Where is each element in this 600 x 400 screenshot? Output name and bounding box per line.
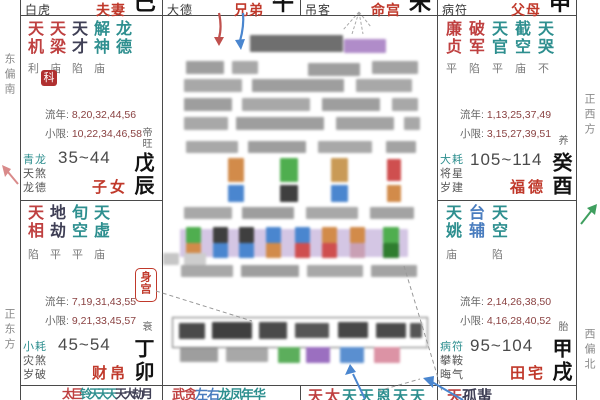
censored-block bbox=[213, 227, 228, 243]
star: 天空 bbox=[489, 204, 505, 240]
brightness: 利 bbox=[28, 60, 39, 76]
censored-block bbox=[331, 158, 348, 182]
brightness: 陷 bbox=[469, 60, 480, 76]
censored-block bbox=[181, 265, 233, 277]
star: 天才 bbox=[69, 20, 85, 56]
censored-block bbox=[295, 243, 310, 258]
censored-block bbox=[184, 79, 242, 92]
censored-block bbox=[184, 117, 228, 130]
censored-block bbox=[331, 185, 348, 202]
censored-block bbox=[213, 243, 228, 258]
liunian-years: 2,14,26,38,50 bbox=[487, 296, 551, 308]
star: 廉贞 bbox=[443, 20, 459, 56]
censored-block bbox=[306, 347, 330, 363]
xiaoxian-years: 10,22,34,46,58 bbox=[72, 128, 142, 140]
censored-block bbox=[242, 98, 310, 111]
censored-block bbox=[163, 253, 179, 265]
censored-block bbox=[184, 207, 232, 219]
ziwei-chart: 东偏南 正东方 正西方 西偏北 白虎 夫妻 巳 大德 兄弟 午 吊客 命宫 未 … bbox=[0, 0, 600, 400]
god-label: 吊客 bbox=[305, 1, 331, 18]
brightness: 陷 bbox=[492, 246, 503, 262]
liunian-years: 8,20,32,44,56 bbox=[72, 109, 136, 121]
liunian-years: 1,13,25,37,49 bbox=[487, 109, 551, 121]
star-char: 天 bbox=[342, 389, 357, 400]
xiaoxian-label: 小限: bbox=[45, 315, 69, 327]
brightness: 平 bbox=[72, 246, 83, 262]
red-arrow-icon bbox=[214, 13, 224, 46]
liunian-label: 流年: bbox=[460, 296, 484, 308]
censored-block bbox=[280, 158, 298, 182]
censored-block bbox=[186, 243, 201, 258]
censored-block bbox=[252, 79, 344, 92]
branch-char: 巳 bbox=[134, 0, 156, 14]
star-char: 月 bbox=[141, 388, 153, 400]
star: 截空 bbox=[512, 20, 528, 56]
star: 天虚 bbox=[91, 204, 107, 240]
censored-block bbox=[266, 243, 281, 258]
branch-char: 未 bbox=[409, 0, 431, 14]
censored-block bbox=[387, 159, 401, 181]
palace-name: 福德 bbox=[510, 176, 546, 197]
censored-summary-box bbox=[172, 317, 428, 348]
censored-block bbox=[386, 141, 416, 153]
censored-block bbox=[322, 98, 380, 111]
censored-block bbox=[239, 243, 254, 258]
star: 天相 bbox=[25, 204, 41, 240]
palace-strip-wei[interactable]: 吊客 命宫 未 bbox=[300, 0, 437, 15]
censored-block bbox=[266, 227, 281, 243]
star-char: 太 bbox=[325, 389, 340, 400]
year-god: 龙德 bbox=[23, 179, 47, 195]
star: 台辅 bbox=[466, 204, 482, 240]
censored-block bbox=[232, 61, 258, 74]
star-char: 华 bbox=[253, 388, 266, 400]
censored-block bbox=[180, 229, 408, 257]
brightness: 平 bbox=[492, 60, 503, 76]
censored-block bbox=[383, 243, 399, 258]
palace-cell-caibo[interactable]: 天相 地劫 旬空 天虚 陷 平 平 庙 身宫 流年: 7,19,31,43,55… bbox=[20, 200, 162, 385]
censored-block bbox=[236, 117, 324, 130]
stem-branch: 甲戌 bbox=[550, 338, 570, 384]
stem-branch: 癸酉 bbox=[550, 152, 570, 198]
censored-block bbox=[392, 98, 418, 111]
xiaoxian-years: 4,16,28,40,52 bbox=[487, 315, 551, 327]
xiaoxian-label: 小限: bbox=[460, 128, 484, 140]
censored-block bbox=[186, 61, 224, 74]
censored-block bbox=[295, 323, 329, 338]
censored-block bbox=[186, 227, 201, 243]
palace-name: 财帛 bbox=[92, 362, 128, 383]
censored-block bbox=[280, 185, 298, 202]
star-char: 孤 bbox=[462, 389, 477, 400]
palace-cell-fude[interactable]: 廉贞 破军 天官 截空 天哭 平 陷 平 庙 不 流年: 1,13,25,37,… bbox=[437, 15, 577, 200]
life-stage: 帝旺 bbox=[140, 127, 150, 149]
life-stage: 衰 bbox=[140, 321, 150, 332]
palace-name: 田宅 bbox=[510, 362, 546, 383]
censored-block bbox=[307, 265, 363, 277]
censored-block bbox=[212, 322, 252, 339]
censored-block bbox=[228, 185, 244, 202]
censored-block bbox=[322, 227, 337, 243]
palace-cell-zinv[interactable]: 天机 天梁 天才 解神 龙德 利 庙 陷 庙 科 流年: 8,20,32,44,… bbox=[20, 15, 162, 200]
brightness: 庙 bbox=[94, 60, 105, 76]
brightness: 陷 bbox=[72, 60, 83, 76]
life-stage: 胎 bbox=[556, 321, 566, 332]
censored-block bbox=[374, 347, 400, 363]
liunian-label: 流年: bbox=[45, 109, 69, 121]
censored-block bbox=[383, 227, 399, 243]
palace-strip-zi[interactable]: 天 太 天 天 恩 天 天 bbox=[300, 385, 437, 400]
censored-block bbox=[370, 207, 414, 219]
palace-name: 命宫 bbox=[371, 0, 401, 20]
star-char: 天 bbox=[447, 389, 462, 400]
censored-block bbox=[404, 117, 420, 130]
censored-block bbox=[318, 141, 372, 153]
palace-name: 子女 bbox=[92, 176, 128, 197]
palace-strip-chou[interactable]: 武 贪 左 右 龙 凤 年 华 bbox=[162, 385, 300, 400]
censored-block bbox=[350, 227, 365, 243]
compass-east-south: 东偏南 bbox=[3, 53, 14, 98]
brightness: 庙 bbox=[446, 246, 457, 262]
xiaoxian-label: 小限: bbox=[460, 315, 484, 327]
year-god: 晦气 bbox=[440, 366, 464, 382]
star: 天梁 bbox=[47, 20, 63, 56]
god-label: 大德 bbox=[167, 1, 193, 18]
censored-block bbox=[228, 158, 244, 182]
brightness: 平 bbox=[446, 60, 457, 76]
censored-block bbox=[186, 141, 238, 153]
age-range: 45~54 bbox=[58, 335, 111, 355]
dashed-pointer-lines bbox=[156, 266, 442, 391]
brightness: 不 bbox=[538, 60, 549, 76]
brightness: 庙 bbox=[94, 246, 105, 262]
censored-block bbox=[336, 117, 394, 130]
censored-block bbox=[410, 323, 422, 338]
branch-char: 午 bbox=[272, 0, 294, 14]
age-range: 95~104 bbox=[470, 336, 533, 356]
stem-branch: 丁卯 bbox=[132, 338, 152, 384]
censored-block bbox=[376, 323, 406, 338]
censored-block bbox=[184, 253, 206, 265]
palace-strip-yin[interactable]: 太 巨 铃 天 天 天 天 大 劫 月 bbox=[20, 385, 162, 400]
censored-block bbox=[259, 322, 287, 339]
star: 天机 bbox=[25, 20, 41, 56]
censored-block bbox=[179, 323, 205, 339]
body-palace-badge: 身宫 bbox=[135, 268, 157, 302]
censored-block bbox=[350, 243, 365, 258]
censored-block bbox=[372, 61, 418, 74]
compass-west: 正西方 bbox=[583, 93, 594, 138]
censored-block bbox=[340, 347, 364, 363]
star: 解神 bbox=[91, 20, 107, 56]
compass-west-north: 西偏北 bbox=[583, 328, 594, 373]
censored-block bbox=[356, 79, 412, 92]
palace-strip-shen[interactable]: 病符 父母 申 bbox=[437, 0, 577, 15]
palace-cell-tianzhai[interactable]: 天姚 台辅 天空 庙 陷 流年: 2,14,26,38,50 小限: 4,16,… bbox=[437, 200, 577, 385]
grid-line bbox=[162, 0, 163, 400]
age-range: 105~114 bbox=[470, 150, 542, 170]
censored-block bbox=[306, 207, 358, 219]
palace-name: 兄弟 bbox=[234, 0, 264, 20]
censored-block bbox=[338, 322, 368, 338]
censored-block bbox=[295, 227, 310, 243]
censored-block bbox=[250, 35, 343, 52]
censored-block bbox=[248, 141, 306, 153]
star-char: 天 bbox=[393, 389, 408, 400]
brightness: 庙 bbox=[515, 60, 526, 76]
censored-block bbox=[371, 265, 417, 277]
xiaoxian-years: 3,15,27,39,51 bbox=[487, 128, 551, 140]
palace-strip-hai[interactable]: 天 孤 蜚 bbox=[437, 385, 577, 400]
xiaoxian-years: 9,21,33,45,57 bbox=[72, 315, 136, 327]
star: 天哭 bbox=[535, 20, 551, 56]
censored-block bbox=[344, 39, 386, 53]
star: 旬空 bbox=[69, 204, 85, 240]
censored-block bbox=[226, 348, 268, 362]
censored-block bbox=[241, 265, 299, 277]
star-char: 蜚 bbox=[477, 389, 492, 400]
censored-block bbox=[239, 227, 254, 243]
star: 地劫 bbox=[47, 204, 63, 240]
star: 天姚 bbox=[443, 204, 459, 240]
xiaoxian-label: 小限: bbox=[45, 128, 69, 140]
age-range: 35~44 bbox=[58, 148, 111, 168]
brightness: 平 bbox=[50, 246, 61, 262]
liunian-label: 流年: bbox=[460, 109, 484, 121]
star: 破军 bbox=[466, 20, 482, 56]
censored-block bbox=[387, 185, 401, 202]
transform-seal-ke: 科 bbox=[41, 70, 57, 86]
life-stage: 养 bbox=[556, 135, 566, 146]
censored-block bbox=[242, 207, 294, 219]
star-char: 恩 bbox=[376, 389, 391, 400]
star: 天官 bbox=[489, 20, 505, 56]
pink-arrow-icon bbox=[2, 165, 18, 184]
year-god: 岁破 bbox=[23, 366, 47, 382]
year-god: 岁建 bbox=[440, 179, 464, 195]
censored-block bbox=[308, 63, 360, 76]
star-char: 天 bbox=[359, 389, 374, 400]
censored-block bbox=[322, 243, 337, 258]
star: 龙德 bbox=[113, 20, 129, 56]
censored-block bbox=[184, 98, 232, 111]
brightness: 陷 bbox=[28, 246, 39, 262]
censored-block bbox=[278, 347, 300, 363]
palace-strip-si[interactable]: 白虎 夫妻 巳 bbox=[20, 0, 162, 15]
censored-block bbox=[180, 348, 218, 362]
liunian-label: 流年: bbox=[45, 296, 69, 308]
branch-char: 申 bbox=[549, 0, 571, 14]
stem-branch: 戊辰 bbox=[132, 152, 152, 198]
compass-east: 正东方 bbox=[3, 308, 14, 353]
liunian-years: 7,19,31,43,55 bbox=[72, 296, 136, 308]
star-char: 天 bbox=[410, 389, 425, 400]
palace-strip-wu[interactable]: 大德 兄弟 午 bbox=[162, 0, 300, 15]
star-char: 天 bbox=[308, 389, 323, 400]
green-arrow-icon bbox=[581, 204, 597, 224]
